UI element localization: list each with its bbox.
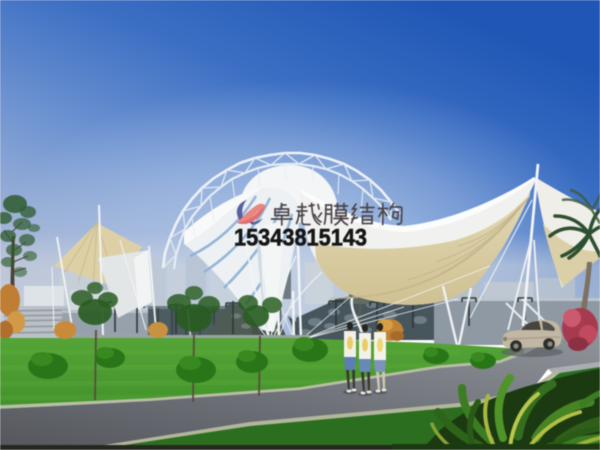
svg-text:15343815143: 15343815143 [234, 225, 367, 252]
